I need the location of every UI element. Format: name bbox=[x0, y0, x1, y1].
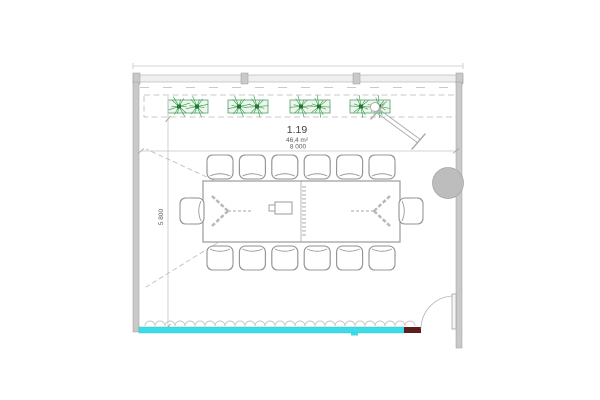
floor-plan-canvas: 8 000 5 800 1.19 46,4 m² bbox=[0, 0, 600, 400]
office-chair bbox=[207, 155, 233, 179]
door-leaf bbox=[452, 294, 456, 329]
dimension-horizontal-label: 8 000 bbox=[290, 144, 307, 151]
office-chair bbox=[304, 246, 330, 270]
office-chair bbox=[369, 155, 395, 179]
floor-plan-drawing: 8 000 5 800 1.19 46,4 m² bbox=[0, 0, 600, 400]
office-chair bbox=[337, 246, 363, 270]
planter-box bbox=[228, 100, 268, 113]
office-chair bbox=[337, 155, 363, 179]
conference-table bbox=[203, 181, 400, 242]
office-chair bbox=[304, 155, 330, 179]
mullion-post bbox=[241, 73, 248, 84]
room-number: 1.19 bbox=[287, 124, 308, 136]
top-wall bbox=[133, 75, 463, 82]
room-label: 1.19 46,4 m² bbox=[286, 124, 309, 144]
office-chair bbox=[272, 246, 298, 270]
room-area: 46,4 m² bbox=[286, 137, 309, 144]
flipchart bbox=[371, 103, 426, 150]
office-chair bbox=[180, 198, 204, 224]
door-swing-arc bbox=[421, 296, 454, 329]
office-chair bbox=[369, 246, 395, 270]
facade-panel bbox=[404, 327, 421, 333]
office-chair bbox=[239, 155, 265, 179]
office-chair bbox=[399, 198, 423, 224]
column-circle bbox=[433, 168, 464, 199]
entrance-door bbox=[421, 294, 456, 329]
right-wall bbox=[456, 82, 462, 348]
mullion-post bbox=[353, 73, 360, 84]
dimension-vertical-label: 5 800 bbox=[158, 208, 165, 225]
planter-row bbox=[168, 95, 390, 118]
left-wall bbox=[133, 82, 139, 332]
office-chair bbox=[207, 246, 233, 270]
glass-facade-band bbox=[139, 327, 404, 333]
facade-sensor bbox=[351, 333, 358, 336]
curtain-line bbox=[145, 321, 415, 326]
office-chair bbox=[239, 246, 265, 270]
bottom-facade bbox=[139, 321, 421, 336]
office-chair bbox=[272, 155, 298, 179]
